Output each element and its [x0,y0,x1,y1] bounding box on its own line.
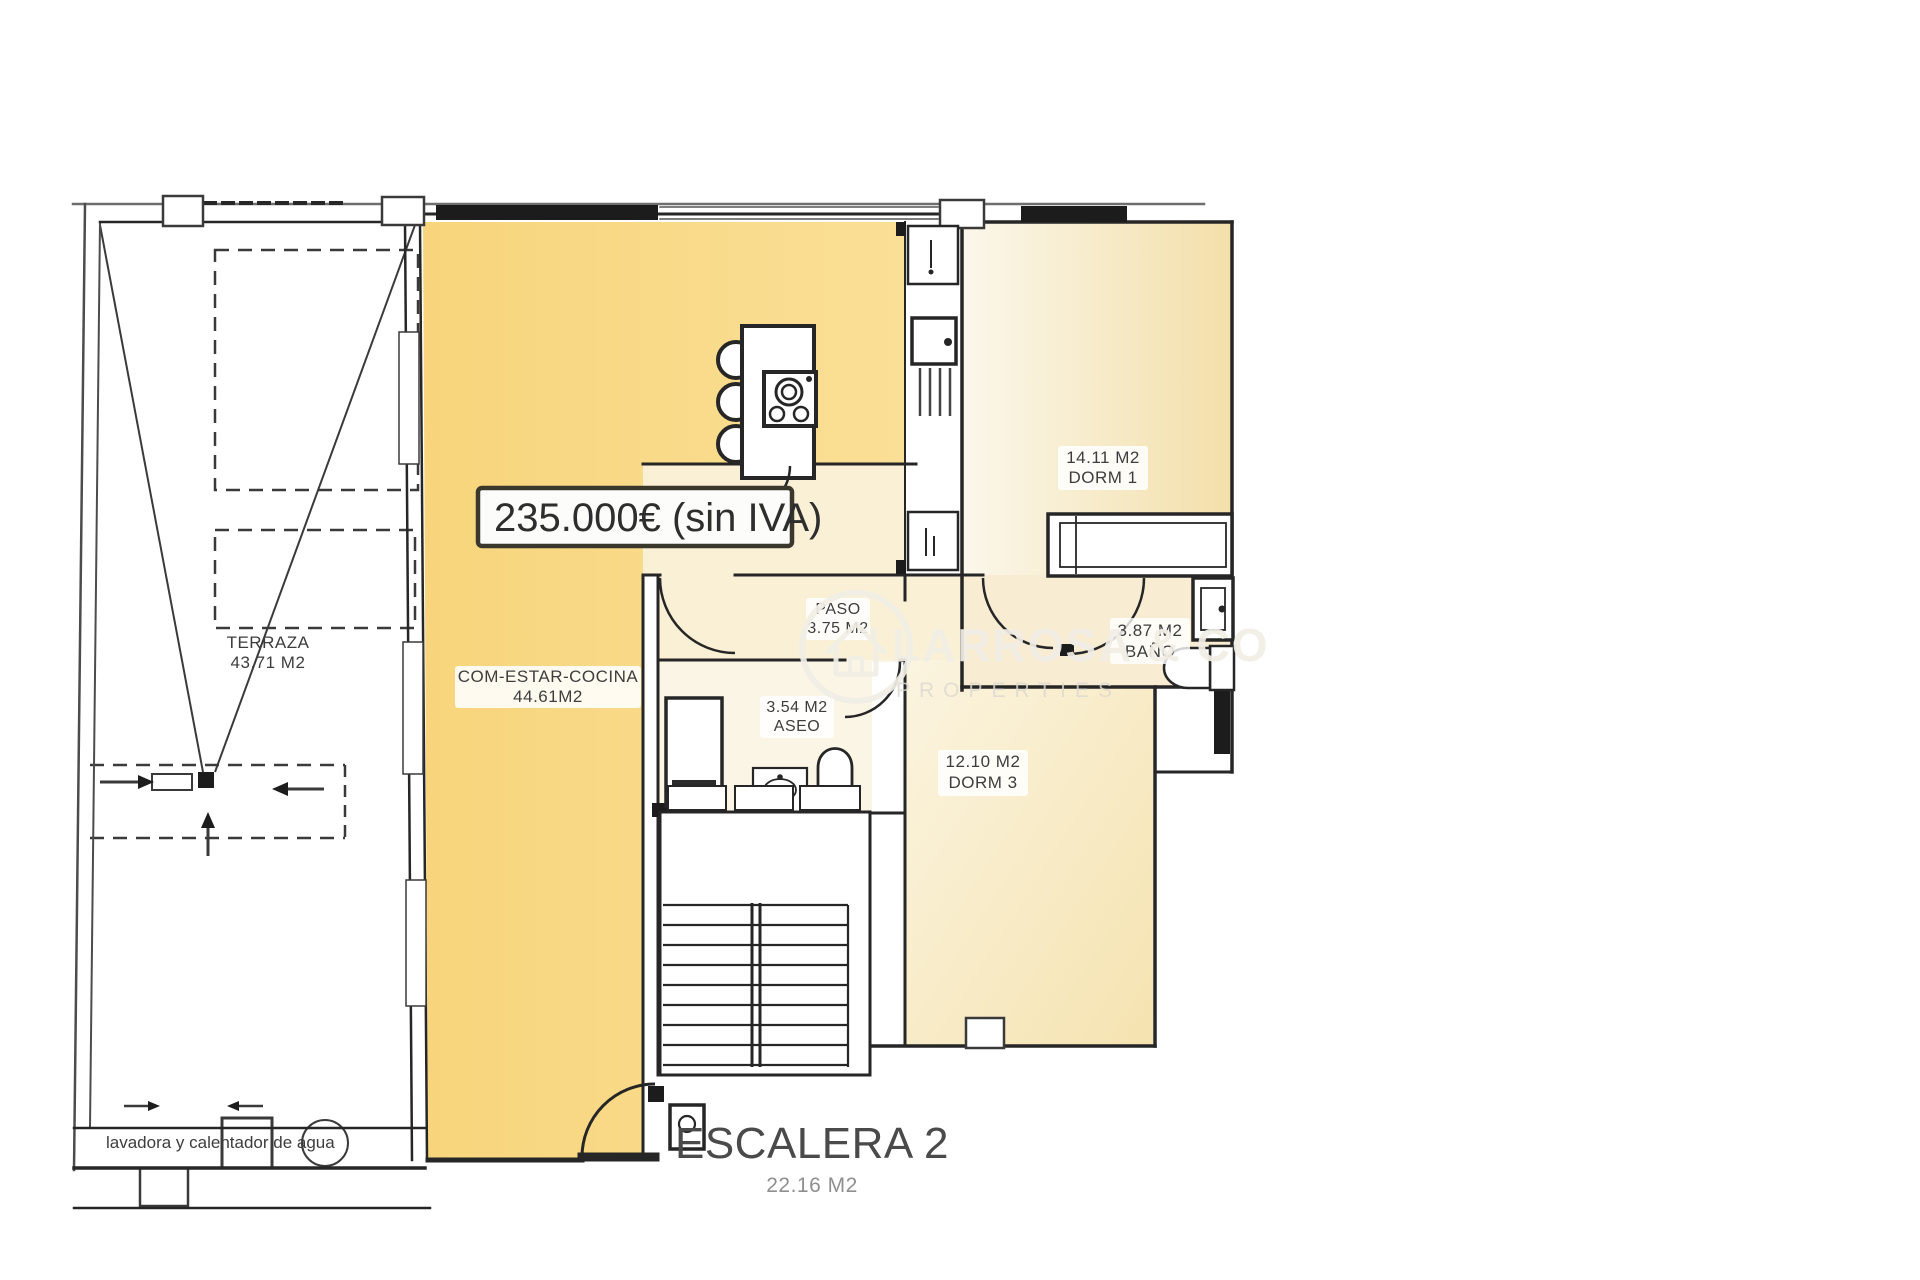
arrow-up-icon [201,812,215,856]
aseo-name: ASEO [774,718,820,735]
living-area: 44.61M2 [513,687,583,706]
arrow-right-icon [100,775,154,789]
divider-window-2 [403,642,423,774]
floor-plan-page: TERRAZA 43.71 M2 COM-ESTAR-COCINA 44.61M… [0,0,1920,1280]
terrace-marker-box [152,774,192,790]
floor-plan-drawing: TERRAZA 43.71 M2 COM-ESTAR-COCINA 44.61M… [0,0,1920,1280]
stair-corridor [872,662,905,1044]
dorm1-top-window-band [1021,206,1127,222]
closet-2 [735,786,793,810]
terrace-graphics [90,225,418,1206]
label-aseo: 3.54 M2 ASEO [760,696,834,738]
terrace-bottom-box [140,1168,188,1206]
escalera-area: 22.16 M2 [766,1174,858,1197]
label-paso: PASO 3.75 M2 [806,598,870,640]
staircase [660,812,870,1075]
terrace-dashed-area-lower [215,530,415,628]
watermark-name: LARROSA & CO [892,619,1270,671]
terraza-area: 43.71 M2 [231,653,306,672]
price-text: 235.000€ (sin IVA) [494,496,822,540]
terraza-name: TERRAZA [227,633,310,652]
top-window-notch-2 [382,197,424,225]
top-window-notch-3 [940,200,984,228]
living-name: COM-ESTAR-COCINA [458,667,639,686]
closet-1 [668,786,726,810]
label-living: COM-ESTAR-COCINA 44.61M2 [455,666,641,708]
dorm3-area: 12.10 M2 [946,752,1021,771]
price-tag: 235.000€ (sin IVA) [478,488,822,546]
watermark-tagline: PROPERTIES [896,679,1121,702]
counter-tick-top [896,222,906,236]
cooktop-icon [764,372,816,426]
dorm3-floor [905,660,1153,1046]
label-terraza: TERRAZA 43.71 M2 [227,633,310,672]
top-window-notch-1 [163,196,203,226]
escalera-name: ESCALERA 2 [675,1119,949,1168]
dorm1-area: 14.11 M2 [1066,448,1140,467]
sink-unit-top [908,226,958,284]
divider-window-3 [406,880,426,1006]
terrace-diagonal-right [215,225,415,772]
terrace-dashed-area-upper [215,250,418,490]
divider-window-1 [399,332,419,464]
dorm3-name: DORM 3 [948,773,1017,792]
left-inner-wall [90,222,100,1128]
left-outer-wall [74,204,85,1170]
kitchen-island [718,326,816,478]
terrace-diagonal-left [100,225,203,772]
label-dorm1: 14.11 M2 DORM 1 [1058,446,1148,490]
dorm3-window-notch [966,1018,1004,1048]
laundry-arrow-left-icon [227,1101,263,1111]
entrance-hinge-block [648,1086,664,1102]
label-escalera: ESCALERA 2 22.16 M2 [675,1119,949,1197]
label-dorm3: 12.10 M2 DORM 3 [938,750,1028,796]
closet-3 [800,786,860,810]
gallery-pillar [1214,690,1230,754]
laundry-note: lavadora y calentador de agua [106,1133,335,1152]
aseo-area: 3.54 M2 [766,699,827,716]
arrow-left-icon [272,782,324,796]
living-top-window-band [436,205,658,220]
terrace-marker-square [198,772,214,788]
counter-tick-bottom [896,560,906,574]
laundry-arrow-right-icon [124,1101,160,1111]
dorm1-name: DORM 1 [1068,468,1137,487]
bed-icon [1048,514,1232,576]
